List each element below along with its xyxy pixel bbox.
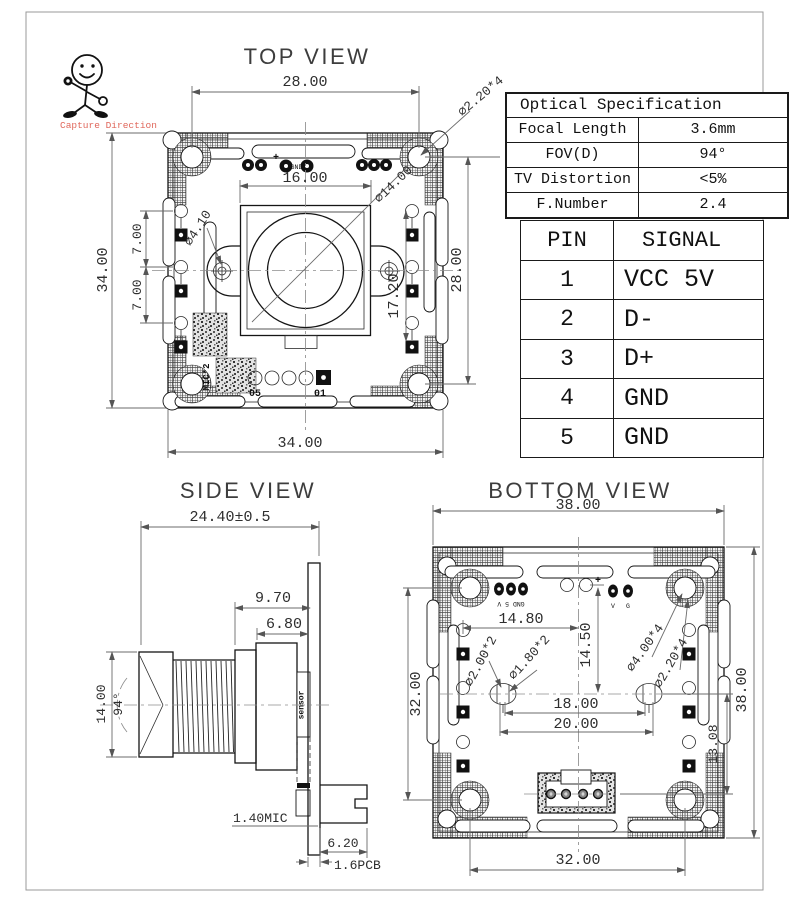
dim-28-right: 28.00: [449, 247, 466, 292]
bottom-silk-v: V: [611, 603, 615, 610]
dim-38-top: 38.00: [555, 497, 600, 514]
dim-lens-dia: 14.00: [94, 684, 109, 723]
sensor-label: sensor: [298, 690, 307, 719]
dim-34-bottom: 34.00: [277, 435, 322, 452]
dim-34-left: 34.00: [95, 247, 112, 292]
dim-fov-angle: 94°: [111, 692, 126, 715]
pin-row-4: 4 GND: [521, 379, 763, 419]
spec-label: TV Distortion: [507, 168, 639, 192]
spec-row-fov: FOV(D) 94°: [507, 143, 787, 168]
pin-row-2: 2 D-: [521, 300, 763, 340]
pad-label-05: 05: [249, 389, 261, 400]
callout-corner-hole: ⌀2.20*4: [455, 73, 507, 120]
pin-signal: GND: [614, 419, 763, 458]
optical-spec-table: Optical Specification Focal Length 3.6mm…: [505, 92, 789, 219]
dim-total-length: 24.40±0.5: [189, 509, 270, 526]
dim-16: 16.00: [282, 170, 327, 187]
spec-value: 94°: [639, 143, 787, 167]
pin-number: 4: [521, 379, 614, 418]
pin-row-3: 3 D+: [521, 340, 763, 380]
dim-17-20: 17.20: [386, 273, 403, 318]
spec-value: 2.4: [639, 193, 787, 217]
bottom-view: BOTTOM VIEW: [403, 478, 760, 876]
spec-label: FOV(D): [507, 143, 639, 167]
pin-table: PIN SIGNAL 1 VCC 5V 2 D- 3 D+ 4 GND 5 GN…: [520, 220, 764, 458]
dim-9-70: 9.70: [255, 590, 291, 607]
capture-direction-figure: [62, 55, 108, 119]
spec-label: Focal Length: [507, 118, 639, 142]
pin-row-5: 5 GND: [521, 419, 763, 458]
spec-row-focal-length: Focal Length 3.6mm: [507, 118, 787, 143]
spec-row-f-number: F.Number 2.4: [507, 193, 787, 217]
top-view-bottom-pads: [248, 370, 331, 385]
dim-7-lower: 7.00: [130, 279, 145, 310]
dim-14-50: 14.50: [578, 622, 595, 667]
pin-number: 1: [521, 261, 614, 300]
pin-header-cell: PIN: [521, 221, 614, 260]
dim-13-08: 13.08: [706, 724, 721, 763]
side-view: SIDE VIEW sensor: [94, 478, 381, 873]
lens-threads: [176, 661, 234, 752]
pin-number: 2: [521, 300, 614, 339]
dim-28-top: 28.00: [282, 74, 327, 91]
spec-label: F.Number: [507, 193, 639, 217]
spec-value: <5%: [639, 168, 787, 192]
dim-14-80: 14.80: [498, 611, 543, 628]
bottom-silk-g: G: [626, 603, 630, 610]
bottom-view-connector: [538, 770, 615, 813]
mic-label: MIC*2: [202, 363, 212, 390]
pin-row-1: 1 VCC 5V: [521, 261, 763, 301]
side-view-title: SIDE VIEW: [180, 478, 316, 503]
dim-6-80: 6.80: [266, 616, 302, 633]
callout-boss-hole: ⌀2.00*2: [461, 634, 500, 689]
capture-direction-label: Capture Direction: [60, 120, 157, 131]
dim-32-left: 32.00: [408, 671, 425, 716]
dim-20: 20.00: [553, 716, 598, 733]
pin-table-header: PIN SIGNAL: [521, 221, 763, 261]
signal-header-cell: SIGNAL: [614, 221, 763, 260]
dim-32-bottom: 32.00: [555, 852, 600, 869]
bottom-silk-left: GND 5 V: [497, 600, 524, 607]
dim-18: 18.00: [553, 696, 598, 713]
pad-label-01: 01: [314, 389, 326, 400]
label-mic: 1.40MIC: [233, 811, 288, 826]
bottom-view-top-pads: [494, 579, 633, 598]
dim-38-right: 38.00: [734, 667, 751, 712]
pin-number: 3: [521, 340, 614, 379]
pin-number: 5: [521, 419, 614, 458]
dim-6-20: 6.20: [327, 836, 358, 851]
pin-signal: D-: [614, 300, 763, 339]
pin-signal: VCC 5V: [614, 261, 763, 300]
top-view-title: TOP VIEW: [244, 44, 371, 69]
pin-signal: D+: [614, 340, 763, 379]
top-plus-mark: +: [273, 153, 279, 164]
optical-spec-title: Optical Specification: [507, 94, 787, 118]
label-pcb: 1.6PCB: [334, 858, 381, 873]
spec-row-tv-distortion: TV Distortion <5%: [507, 168, 787, 193]
top-view: TOP VIEW: [95, 44, 507, 458]
drawing-sheet: { "figure": { "capture_direction": "Capt…: [0, 0, 790, 902]
dim-7-upper: 7.00: [130, 223, 145, 254]
spec-value: 3.6mm: [639, 118, 787, 142]
pin-signal: GND: [614, 379, 763, 418]
